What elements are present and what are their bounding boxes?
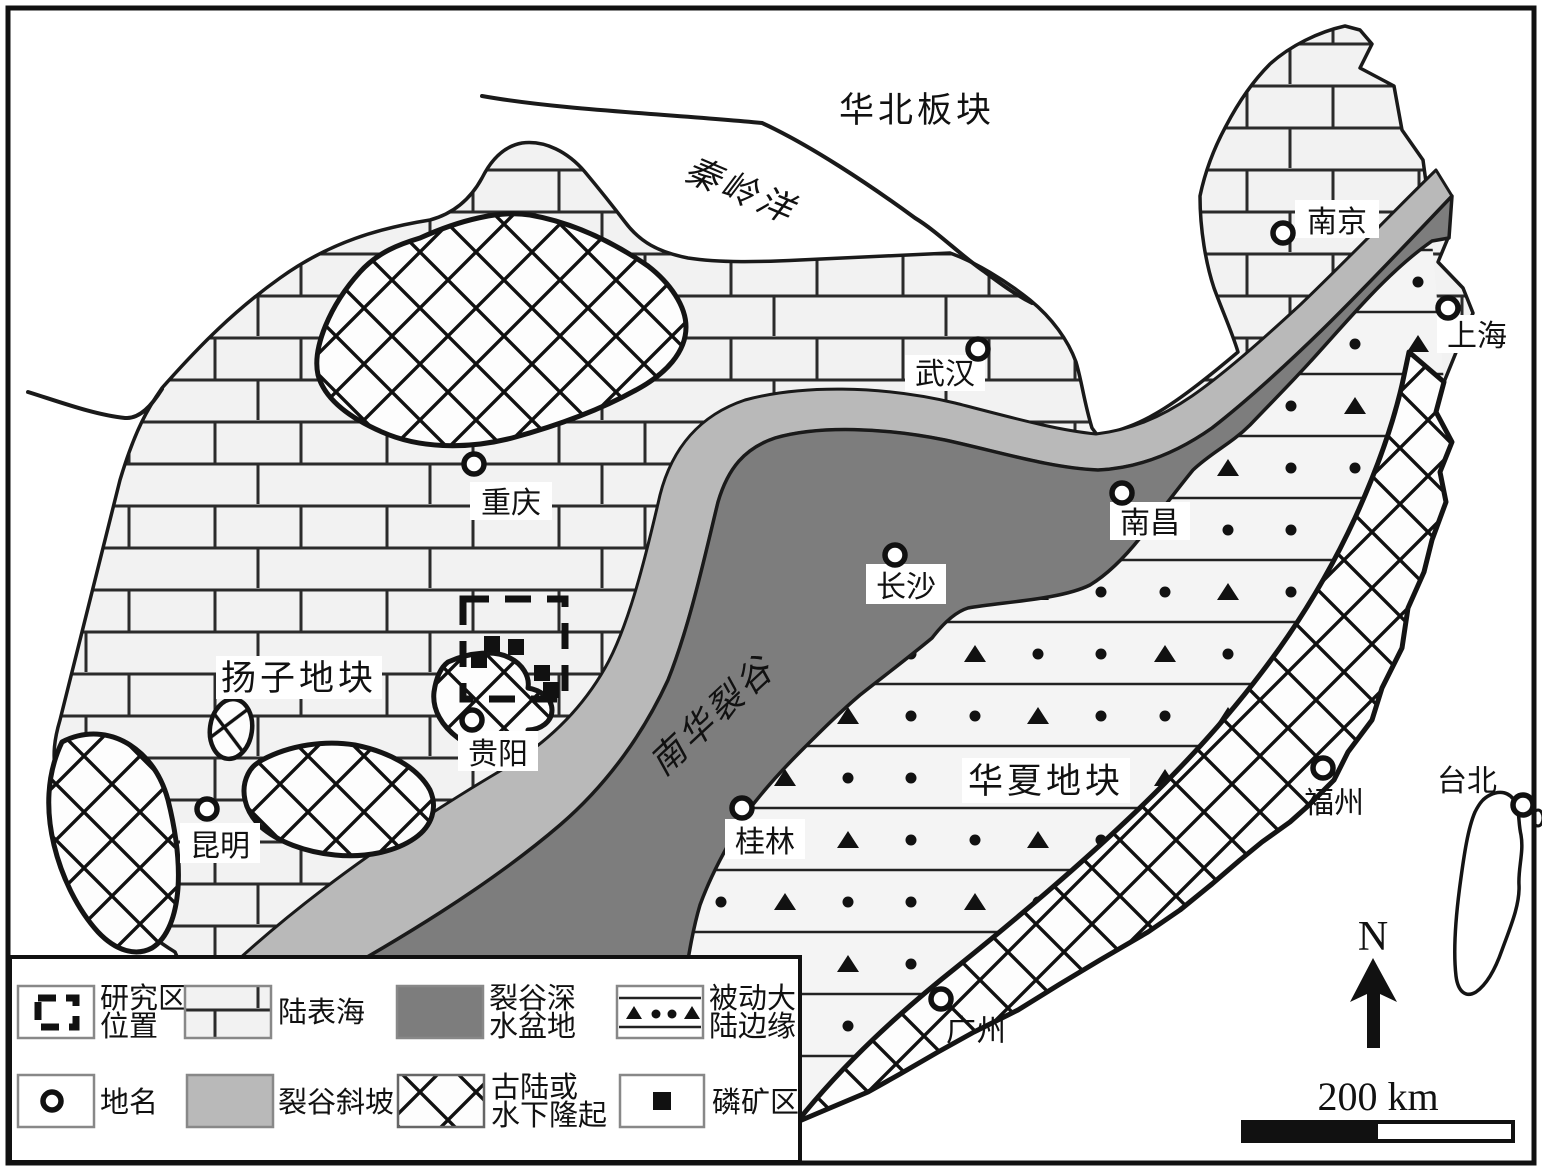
- rift-deep-basin-icon: [397, 986, 483, 1038]
- city-marker-fuzhou: [1313, 758, 1333, 778]
- city-marker-taipei: [1513, 795, 1533, 815]
- svg-text:裂谷斜坡: 裂谷斜坡: [278, 1086, 394, 1119]
- phosphate-area-icon: [653, 1092, 671, 1110]
- label-cathaysia-block: 华夏地块: [968, 762, 1124, 801]
- scale-bar-filled-half: [1243, 1122, 1378, 1141]
- city-label-taipei: 台北: [1437, 765, 1497, 798]
- city-marker-guilin: [732, 798, 752, 818]
- city-label-fuzhou: 福州: [1304, 787, 1364, 820]
- city-label-nanjing: 南京: [1307, 206, 1367, 239]
- city-marker-wuhan: [968, 339, 988, 359]
- legend-item-paleoland-uplift: 古陆或水下隆起: [398, 1071, 607, 1132]
- svg-text:被动大陆边缘: 被动大陆边缘: [709, 982, 796, 1043]
- north-arrow-label: N: [1358, 914, 1388, 960]
- city-label-guiyang: 贵阳: [468, 738, 528, 771]
- city-label-guilin: 桂林: [735, 826, 795, 859]
- city-marker-changsha: [885, 545, 905, 565]
- map-canvas: 华北板块 秦岭洋 扬子地块 南华裂谷 华夏地块 南京 上海 武汉 重庆: [0, 0, 1542, 1171]
- epicontinental-sea-icon: [185, 986, 271, 1038]
- city-label-nanchang: 南昌: [1120, 507, 1180, 540]
- city-marker-guiyang: [462, 710, 482, 730]
- label-yangtze-block: 扬子地块: [221, 659, 377, 698]
- city-marker-nanjing: [1273, 223, 1293, 243]
- place-name-icon: [43, 1092, 61, 1110]
- map-figure: 华北板块 秦岭洋 扬子地块 南华裂谷 华夏地块 南京 上海 武汉 重庆: [0, 0, 1542, 1171]
- city-label-kunming: 昆明: [190, 830, 250, 863]
- label-north-china-plate: 华北板块: [839, 91, 995, 130]
- legend: 研究区位置 陆表海 裂谷深水盆地 被动大陆边缘 地名 裂谷斜坡: [10, 957, 800, 1162]
- paleoland-uplift-icon: [398, 1075, 484, 1127]
- city-marker-chongqing: [464, 454, 484, 474]
- city-marker-nanchang: [1112, 483, 1132, 503]
- scale-bar-label: 200 km: [1317, 1074, 1438, 1119]
- city-marker-kunming: [197, 799, 217, 819]
- svg-text:陆表海: 陆表海: [278, 996, 365, 1029]
- city-marker-shanghai: [1438, 298, 1458, 318]
- svg-text:裂谷深水盆地: 裂谷深水盆地: [489, 982, 576, 1043]
- svg-text:地名: 地名: [100, 1086, 158, 1119]
- city-label-wuhan: 武汉: [915, 358, 975, 391]
- svg-text:磷矿区: 磷矿区: [712, 1086, 799, 1119]
- city-label-changsha: 长沙: [876, 571, 936, 604]
- rift-slope-icon: [187, 1075, 273, 1127]
- city-marker-guangzhou: [931, 989, 951, 1009]
- city-label-shanghai: 上海: [1447, 320, 1507, 353]
- city-label-guangzhou: 广州: [946, 1015, 1006, 1048]
- city-label-chongqing: 重庆: [481, 487, 541, 520]
